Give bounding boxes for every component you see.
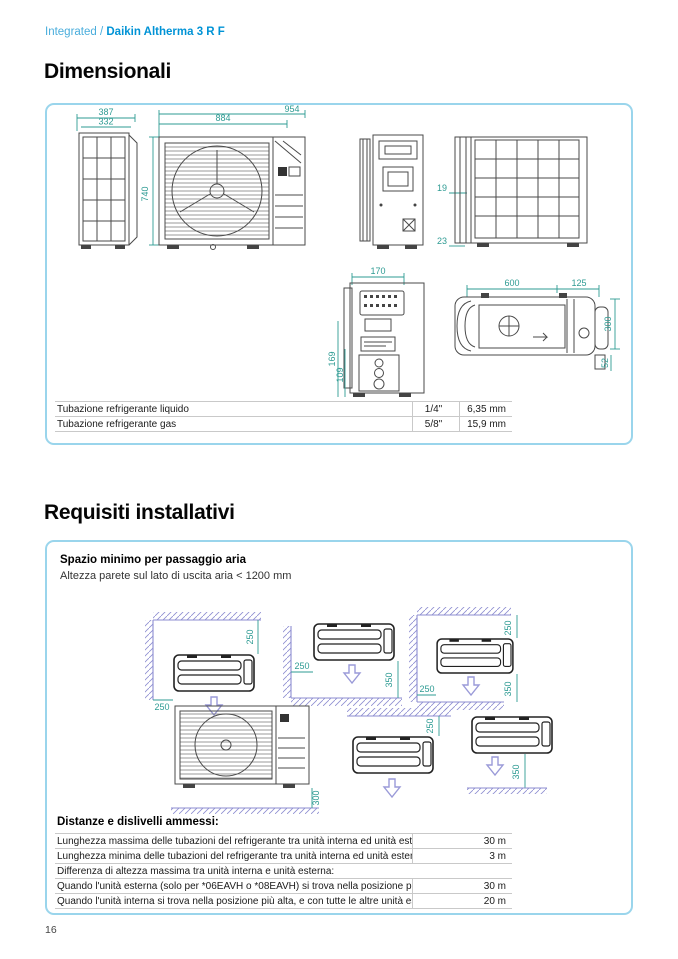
pipe-size: 5/8": [412, 417, 459, 432]
clearance-subheading: Altezza parete sul lato di uscita aria <…: [60, 570, 291, 582]
drawing-side-view-left: 387 332: [77, 107, 137, 249]
drawing-top-view: 600 125 300: [455, 278, 620, 371]
dimensional-drawings: 387 332 954: [47, 105, 631, 397]
diagram-wall-three-sides: 250 250 350: [409, 607, 517, 710]
dim-23: 23: [437, 236, 447, 246]
dim-169: 169: [327, 351, 337, 366]
clearance-heading: Spazio minimo per passaggio aria: [60, 554, 246, 566]
clearance-250-top: 250: [503, 620, 513, 635]
dim-954: 954: [284, 105, 299, 114]
clearance-350-bottom: 350: [503, 681, 513, 696]
clearance-350-bottom: 350: [511, 764, 521, 779]
distance-label: Quando l'unità esterna (solo per *06EAVH…: [55, 879, 412, 894]
dim-332: 332: [98, 117, 113, 127]
breadcrumb-section: Integrated /: [45, 26, 106, 38]
breadcrumb-product: Daikin Altherma 3 R F: [106, 26, 224, 38]
dimensional-panel: 387 332 954: [45, 103, 633, 445]
clearance-250-top: 250: [245, 629, 255, 644]
dim-19: 19: [437, 183, 447, 193]
diagram-wall-left-bottom: 250 350: [283, 624, 402, 706]
drawing-side-view-right: [360, 135, 423, 249]
table-row: Quando l'unità esterna (solo per *06EAVH…: [55, 879, 512, 894]
installation-panel: Spazio minimo per passaggio aria Altezza…: [45, 540, 633, 915]
dim-170: 170: [370, 266, 385, 276]
clearance-300-ground: 300: [311, 790, 321, 805]
section-title-dimensionali: Dimensionali: [44, 60, 171, 84]
pipe-mm: 15,9 mm: [459, 417, 512, 432]
distances-table: Lunghezza massima delle tubazioni del re…: [55, 833, 512, 909]
table-row: Differenza di altezza massima tra unità …: [55, 864, 512, 879]
pipe-mm: 6,35 mm: [459, 402, 512, 417]
page-number: 16: [45, 924, 57, 936]
breadcrumb: Integrated / Daikin Altherma 3 R F: [45, 26, 225, 38]
diagram-wall-bottom: 350: [467, 717, 552, 794]
table-row: Lunghezza minima delle tubazioni del ref…: [55, 849, 512, 864]
table-row: Lunghezza massima delle tubazioni del re…: [55, 834, 512, 849]
dim-884: 884: [215, 113, 230, 123]
catalog-page: Integrated / Daikin Altherma 3 R F Dimen…: [0, 0, 678, 959]
clearance-diagrams: 250 250 250 350: [47, 592, 631, 814]
table-row: Quando l'unità interna si trova nella po…: [55, 894, 512, 909]
distances-heading: Distanze e dislivelli ammessi:: [57, 816, 219, 828]
distance-label: Quando l'unità interna si trova nella po…: [55, 894, 412, 909]
distance-label: Differenza di altezza massima tra unità …: [55, 864, 512, 879]
diagram-wall-left-top: 250 250: [145, 612, 261, 715]
clearance-350-bottom: 350: [384, 672, 394, 687]
table-row: Tubazione refrigerante liquido 1/4" 6,35…: [55, 402, 512, 417]
dim-125: 125: [571, 278, 586, 288]
clearance-250-top: 250: [425, 718, 435, 733]
dim-387: 387: [98, 107, 113, 117]
distance-label: Lunghezza minima delle tubazioni del ref…: [55, 849, 412, 864]
distance-value: 30 m: [412, 834, 512, 849]
dim-600: 600: [504, 278, 519, 288]
drawing-back-view: 19 23: [437, 137, 587, 247]
distance-label: Lunghezza massima delle tubazioni del re…: [55, 834, 412, 849]
distance-value: 3 m: [412, 849, 512, 864]
clearance-250-left: 250: [294, 661, 309, 671]
dim-740: 740: [140, 186, 150, 201]
pipe-size: 1/4": [412, 402, 459, 417]
drawing-back-detail: 170 169: [327, 266, 424, 397]
distance-value: 20 m: [412, 894, 512, 909]
drawing-front-view: 954 884 740: [140, 105, 305, 250]
pipe-size-table: Tubazione refrigerante liquido 1/4" 6,35…: [55, 401, 512, 432]
dim-109: 109: [335, 367, 345, 382]
dim-300: 300: [603, 316, 613, 331]
clearance-250-left: 250: [154, 702, 169, 712]
clearance-250-left: 250: [419, 684, 434, 694]
table-row: Tubazione refrigerante gas 5/8" 15,9 mm: [55, 417, 512, 432]
dim-52: 52: [600, 358, 610, 368]
pipe-label: Tubazione refrigerante gas: [55, 417, 412, 432]
diagram-wall-top: 250: [347, 708, 451, 797]
section-title-requisiti: Requisiti installativi: [44, 501, 235, 525]
diagram-front-ground: 300: [171, 706, 321, 814]
distance-value: 30 m: [412, 879, 512, 894]
pipe-label: Tubazione refrigerante liquido: [55, 402, 412, 417]
